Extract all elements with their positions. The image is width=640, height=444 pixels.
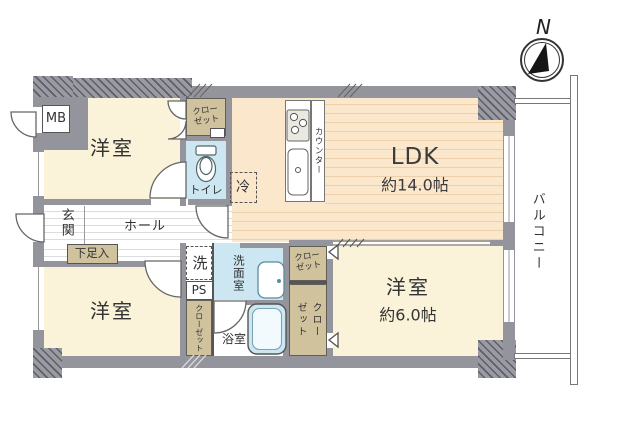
ldk-size-label: 約14.0帖 [381, 175, 449, 194]
washer-label: 洗 [192, 254, 207, 272]
wall-closet-bedroom3-b [327, 259, 333, 333]
compass: N [521, 15, 563, 81]
kitchen-counter [285, 100, 311, 202]
bedroom-bottom-right-label: 洋室 [386, 275, 430, 299]
wall-washroom-closets [283, 243, 289, 356]
balcony-rail [570, 75, 578, 385]
bathroom-floor [214, 305, 283, 356]
pipe-space-label: PS [192, 283, 207, 297]
wall-bedroom1-toilet [180, 139, 186, 206]
wall-toilet-hall [188, 199, 232, 205]
bathroom-label: 浴室 [222, 332, 246, 346]
washroom-floor [214, 243, 283, 300]
window-ldk-balcony [504, 136, 514, 222]
closet-top-shelf [210, 128, 225, 138]
window-bedroom-bottom-left [33, 267, 44, 330]
ldk-label: LDK [391, 144, 440, 172]
bedroom-bottom-right-size: 約6.0帖 [379, 305, 436, 324]
entrance-label: 玄関 [58, 208, 74, 238]
wall-bottom-left-corner [33, 348, 62, 378]
entrance-step-line [84, 206, 85, 246]
wall-bottom [33, 356, 515, 368]
wall-top-right-corner [478, 86, 516, 120]
closet-bathroom-side-label: クローゼット [194, 304, 204, 352]
meter-box-door-gap [33, 107, 42, 133]
closet-washroom-side-label: クロー ゼット [294, 250, 322, 274]
meter-box-label: MB [46, 111, 66, 127]
wall-bedroom1-closet-a [180, 96, 186, 101]
wall-closet-bedroom3-c [327, 348, 333, 356]
shoebox-label: 下足入 [75, 247, 110, 261]
floor-plan: MB 洋室 クロー ゼット トイレ 冷 カウンター LDK 約14.0帖 玄関 … [0, 0, 640, 444]
counter-label: カウンター [313, 127, 323, 175]
balcony-label: バルコニー [529, 192, 545, 272]
entrance-door-arc [16, 214, 44, 242]
wall-closet-bedroom3-a [327, 243, 333, 245]
balcony-partition-top [514, 98, 571, 104]
washroom-label: 洗面室 [231, 254, 245, 292]
closet-top-label: クロー ゼット [192, 104, 220, 128]
fridge-label: 冷 [236, 180, 250, 197]
window-bedroom-top-left [33, 152, 44, 196]
compass-needle [528, 43, 549, 74]
wall-washroom-top [240, 243, 289, 248]
bedroom-top-left-label: 洋室 [90, 136, 134, 160]
balcony-partition-bottom [514, 353, 571, 359]
toilet-label: トイレ [190, 183, 223, 196]
wall-ldk-bedroom3-end [490, 240, 503, 246]
wall-bedroom1-hall-a [44, 199, 151, 205]
bedroom-bottom-left-label: 洋室 [90, 299, 134, 323]
wall-closet-c-d [289, 281, 327, 284]
closet-bedroom3-label: クロー ゼット [293, 302, 323, 338]
hall-label: ホール [124, 219, 166, 235]
window-bedroom3-balcony [504, 250, 514, 322]
compass-north-label: N [536, 15, 551, 39]
